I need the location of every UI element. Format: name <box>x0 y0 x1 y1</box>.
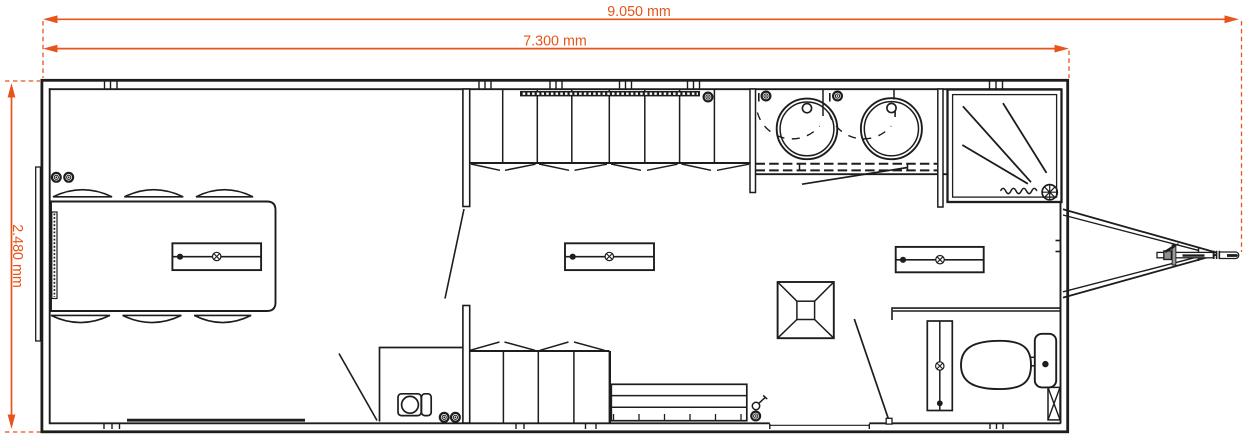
svg-text:7.300 mm: 7.300 mm <box>523 34 587 50</box>
svg-text:9.050 mm: 9.050 mm <box>607 4 671 20</box>
svg-text:2.480 mm: 2.480 mm <box>9 224 25 288</box>
